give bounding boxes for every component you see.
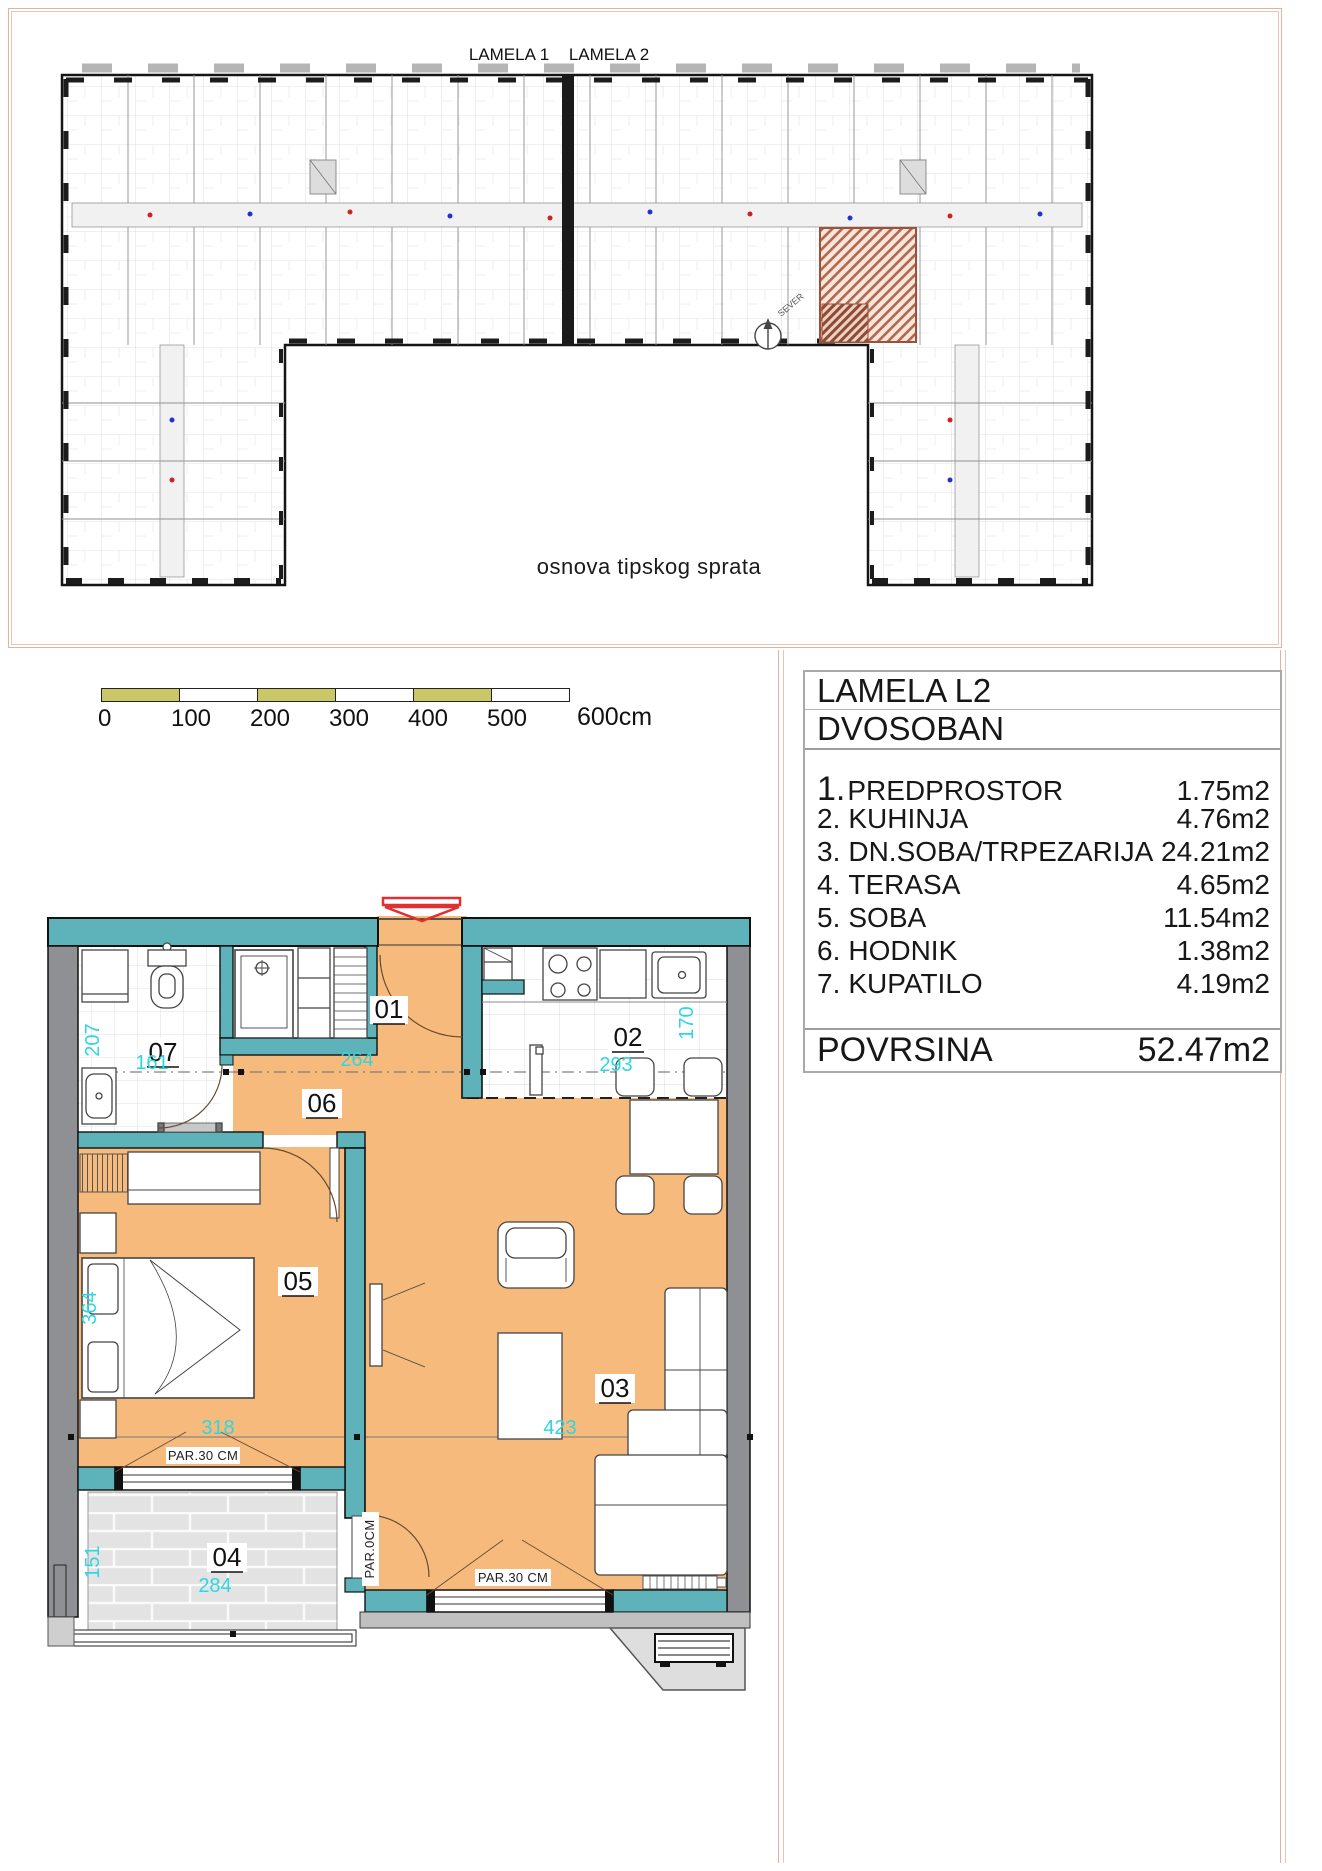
living-window <box>427 1590 613 1612</box>
bedroom-window <box>115 1467 300 1490</box>
room-num: 7. <box>817 968 840 1000</box>
svg-text:01: 01 <box>375 994 404 1024</box>
scale-segment <box>335 688 414 702</box>
hall-shelves <box>298 948 367 1038</box>
scale-segment <box>179 688 258 702</box>
room-num: 5. <box>817 902 840 934</box>
svg-text:03: 03 <box>601 1373 630 1403</box>
room-name: HODNIK <box>848 935 1176 967</box>
room-num: 4. <box>817 869 840 901</box>
room-name: KUHINJA <box>848 803 1176 835</box>
room-label-06: 06 <box>302 1088 342 1118</box>
parapet-living: PAR.30 CM <box>475 1569 551 1586</box>
bed <box>82 1258 254 1398</box>
room-area: 1.38m2 <box>1177 935 1270 967</box>
room-num: 2. <box>817 803 840 835</box>
toilet <box>148 943 186 1008</box>
room-row: 7. KUPATILO 4.19m2 <box>817 968 1270 1001</box>
dim-terrace-h: 151 <box>82 1545 104 1578</box>
room-row: 5. SOBA 11.54m2 <box>817 902 1270 935</box>
stove <box>543 948 597 1000</box>
scale-segment <box>413 688 492 702</box>
room-num: 6. <box>817 935 840 967</box>
dining-table <box>630 1100 718 1174</box>
total-value: 52.47m2 <box>1138 1031 1270 1070</box>
dim-hall-w: 264 <box>340 1049 373 1071</box>
dim-bath-h: 207 <box>82 1023 104 1056</box>
total-label: POVRSINA <box>817 1031 1138 1070</box>
room-area: 4.19m2 <box>1177 968 1270 1000</box>
room-row: 2. KUHINJA 4.76m2 <box>817 803 1270 836</box>
scale-segment <box>257 688 336 702</box>
room-row: 4. TERASA 4.65m2 <box>817 869 1270 902</box>
svg-text:PAR.0CM: PAR.0CM <box>362 1520 377 1579</box>
room-name: KUPATILO <box>848 968 1176 1000</box>
armchair <box>498 1222 574 1288</box>
total-area-row: POVRSINA 52.47m2 <box>805 1028 1280 1071</box>
top-section-frame <box>8 8 1282 648</box>
room-name: TERASA <box>848 869 1176 901</box>
scale-bar <box>102 688 570 702</box>
scale-tick-0: 0 <box>98 705 111 733</box>
room-label-01: 01 <box>370 994 408 1024</box>
room-area: 11.54m2 <box>1163 902 1270 934</box>
svg-text:04: 04 <box>213 1542 242 1572</box>
panel-title: LAMELA L2 <box>805 672 1280 710</box>
room-label-02: 02 <box>608 1022 648 1052</box>
scale-tick-300: 300 <box>329 705 369 733</box>
nightstand <box>80 1400 116 1438</box>
dim-bed-w: 318 <box>201 1417 234 1439</box>
scale-tick-400: 400 <box>408 705 448 733</box>
vertical-divider-left <box>778 650 784 1863</box>
parapet-bedroom: PAR.30 CM <box>166 1447 240 1464</box>
svg-text:PAR.30 CM: PAR.30 CM <box>168 1448 238 1463</box>
kitchen-sink <box>652 952 706 998</box>
scale-end-label: 600cm <box>577 703 652 732</box>
svg-text:06: 06 <box>308 1088 337 1118</box>
nightstand <box>80 1213 116 1253</box>
room-area: 4.76m2 <box>1177 803 1270 835</box>
panel-subtitle: DVOSOBAN <box>805 710 1280 750</box>
kitchen-shaft <box>484 948 512 980</box>
apartment-plan: 01 02 03 04 05 06 07 207 161 264 293 170… <box>48 898 753 1690</box>
dim-terrace-w: 284 <box>198 1575 231 1597</box>
counter-end-panel <box>530 1045 543 1095</box>
shower <box>235 950 293 1038</box>
room-num: 3. <box>817 836 840 868</box>
svg-text:PAR.30 CM: PAR.30 CM <box>478 1570 548 1585</box>
room-label-05: 05 <box>278 1266 318 1296</box>
room-row: 1. PREDPROSTOR 1.75m2 <box>817 770 1270 803</box>
bedroom-radiator <box>80 1154 128 1192</box>
wardrobe <box>128 1152 260 1204</box>
dim-living-w: 423 <box>543 1417 576 1439</box>
scale-tick-200: 200 <box>250 705 290 733</box>
room-row: 6. HODNIK 1.38m2 <box>817 935 1270 968</box>
parapet-terrace-door: PAR.0CM <box>362 1512 379 1586</box>
scale-tick-100: 100 <box>171 705 211 733</box>
dim-kitchen-h: 170 <box>676 1006 698 1039</box>
room-name: SOBA <box>848 902 1163 934</box>
svg-text:05: 05 <box>284 1266 313 1296</box>
room-area: 4.65m2 <box>1177 869 1270 901</box>
scale-segment <box>101 688 180 702</box>
scale-segment <box>491 688 570 702</box>
apartment-info-panel: LAMELA L2 DVOSOBAN 1. PREDPROSTOR 1.75m2… <box>803 670 1282 1073</box>
room-list: 1. PREDPROSTOR 1.75m2 2. KUHINJA 4.76m2 … <box>805 750 1280 1001</box>
room-area: 24.21m2 <box>1161 836 1270 868</box>
ac-unit <box>610 1628 745 1690</box>
dim-bed-h: 364 <box>79 1291 101 1324</box>
room-row: 3. DN.SOBA/TRPEZARIJA 24.21m2 <box>817 836 1270 869</box>
bathroom-sink <box>82 1068 116 1124</box>
counter <box>600 950 646 998</box>
room-label-04: 04 <box>207 1542 247 1572</box>
dim-kitchen-w: 293 <box>599 1054 632 1076</box>
dim-bath-w: 161 <box>135 1052 168 1074</box>
room-label-03: 03 <box>595 1373 635 1403</box>
svg-text:02: 02 <box>614 1022 643 1052</box>
room-name: DN.SOBA/TRPEZARIJA <box>848 836 1161 868</box>
scale-tick-500: 500 <box>487 705 527 733</box>
page: LAMELA 1 LAMELA 2 <box>0 0 1322 1871</box>
